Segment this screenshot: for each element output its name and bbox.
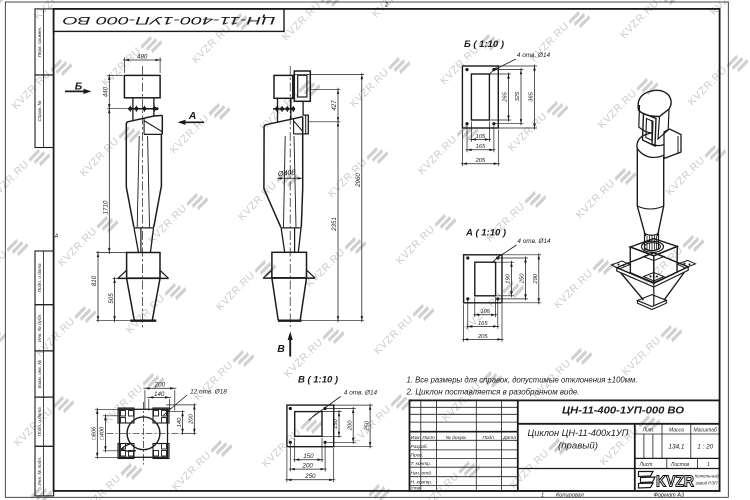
- svg-text:Подп. и дата: Подп. и дата: [37, 263, 42, 292]
- svg-text:А: А: [188, 110, 197, 122]
- svg-text:Листов: Листов: [670, 462, 690, 468]
- svg-text:Н. контр.: Н. контр.: [411, 479, 433, 485]
- svg-text:200: 200: [302, 463, 314, 470]
- svg-text:Изм: Изм: [411, 435, 421, 441]
- svg-text:№ докум.: № докум.: [446, 435, 467, 441]
- svg-text:Перв. примен.: Перв. примен.: [37, 27, 42, 58]
- svg-text:427: 427: [331, 100, 338, 111]
- svg-text:Копировал: Копировал: [556, 493, 585, 499]
- svg-text:2960: 2960: [355, 173, 362, 188]
- svg-text:480: 480: [137, 53, 148, 60]
- svg-text:Утв.: Утв.: [411, 486, 422, 492]
- svg-text:12 отв. Ø18: 12 отв. Ø18: [190, 389, 227, 396]
- svg-text:200: 200: [189, 413, 195, 424]
- svg-text:Масса: Масса: [669, 428, 684, 434]
- svg-text:Т. контр.: Т. контр.: [411, 461, 432, 467]
- svg-text:Лист: Лист: [639, 462, 653, 468]
- svg-text:Инв. № подл.: Инв. № подл.: [37, 457, 42, 486]
- svg-text:2351: 2351: [331, 217, 338, 232]
- svg-text:200: 200: [154, 382, 166, 389]
- svg-text:2. Циклон поставляется в разоб: 2. Циклон поставляется в разобранном вид…: [406, 387, 580, 397]
- svg-text:290: 290: [533, 273, 539, 284]
- svg-text:200: 200: [347, 420, 353, 431]
- svg-text:4 отв. Ø14: 4 отв. Ø14: [517, 52, 551, 59]
- svg-text:ЦН-11-400-1УП-000 ВО: ЦН-11-400-1УП-000 ВО: [562, 405, 684, 416]
- svg-text:Подп. и дата: Подп. и дата: [37, 407, 42, 436]
- svg-text:505: 505: [108, 293, 115, 304]
- svg-text:Пров.: Пров.: [411, 453, 424, 459]
- svg-text:2: 2: [384, 3, 389, 9]
- svg-text:105: 105: [480, 309, 490, 315]
- svg-text:250: 250: [520, 273, 526, 284]
- svg-text:Лист: Лист: [421, 435, 434, 441]
- svg-text:165: 165: [478, 321, 488, 327]
- svg-text:165: 165: [476, 144, 486, 150]
- svg-text:1710: 1710: [103, 200, 110, 214]
- svg-text:1 : 20: 1 : 20: [697, 444, 713, 451]
- svg-text:В: В: [277, 343, 285, 355]
- svg-text:(правый): (правый): [558, 441, 598, 451]
- svg-text:365: 365: [529, 91, 535, 101]
- svg-text:В ( 1:10 ): В ( 1:10 ): [298, 375, 338, 386]
- svg-text:Взам. инв. №: Взам. инв. №: [37, 360, 42, 388]
- svg-text:завод РЭП: завод РЭП: [695, 481, 719, 486]
- svg-text:140: 140: [154, 391, 165, 398]
- svg-text:440: 440: [103, 86, 110, 97]
- svg-text:4 отв. Ø14: 4 отв. Ø14: [517, 238, 551, 245]
- svg-text:250: 250: [364, 420, 370, 431]
- svg-text:205: 205: [477, 334, 488, 340]
- svg-text:Подп.: Подп.: [482, 435, 495, 441]
- svg-text:810: 810: [91, 275, 98, 286]
- svg-text:□400: □400: [100, 426, 106, 440]
- svg-text:105: 105: [476, 134, 486, 140]
- svg-text:ЦН-11-400-1УП-000 ВО: ЦН-11-400-1УП-000 ВО: [62, 14, 276, 26]
- svg-text:А ( 1:10 ): А ( 1:10 ): [465, 228, 506, 239]
- svg-text:205: 205: [475, 158, 486, 164]
- svg-text:1: 1: [541, 493, 544, 499]
- svg-text:А: А: [54, 234, 59, 240]
- svg-text:4 отв. Ø14: 4 отв. Ø14: [344, 390, 378, 397]
- svg-text:Дата: Дата: [502, 435, 516, 441]
- svg-text:Нач. отд.: Нач. отд.: [411, 471, 433, 477]
- svg-text:325: 325: [515, 91, 521, 101]
- svg-text:Справ. №: Справ. №: [37, 101, 42, 122]
- svg-text:150: 150: [333, 418, 339, 428]
- svg-text:Б ( 1:10 ): Б ( 1:10 ): [464, 39, 504, 50]
- svg-text:Инв. № дубл.: Инв. № дубл.: [37, 314, 42, 342]
- svg-text:1: 1: [707, 462, 710, 468]
- svg-text:150: 150: [303, 453, 314, 460]
- svg-text:Котельный: Котельный: [695, 474, 719, 479]
- svg-text:Циклон ЦН-11-400х1УП: Циклон ЦН-11-400х1УП: [528, 428, 630, 438]
- svg-text:190: 190: [506, 273, 512, 283]
- svg-text:1. Все размеры для справок, до: 1. Все размеры для справок, допустимые о…: [407, 374, 638, 384]
- svg-text:Масштаб: Масштаб: [694, 428, 718, 434]
- svg-text:□606: □606: [92, 426, 98, 440]
- svg-text:250: 250: [304, 473, 316, 480]
- svg-text:Лит.: Лит.: [642, 428, 655, 434]
- svg-text:134,1: 134,1: [668, 444, 684, 451]
- svg-text:Разраб.: Разраб.: [411, 444, 428, 450]
- svg-text:Формат А3: Формат А3: [654, 493, 685, 499]
- svg-text:265: 265: [503, 91, 509, 102]
- svg-text:KVZR: KVZR: [656, 474, 694, 491]
- svg-text:140: 140: [177, 417, 183, 427]
